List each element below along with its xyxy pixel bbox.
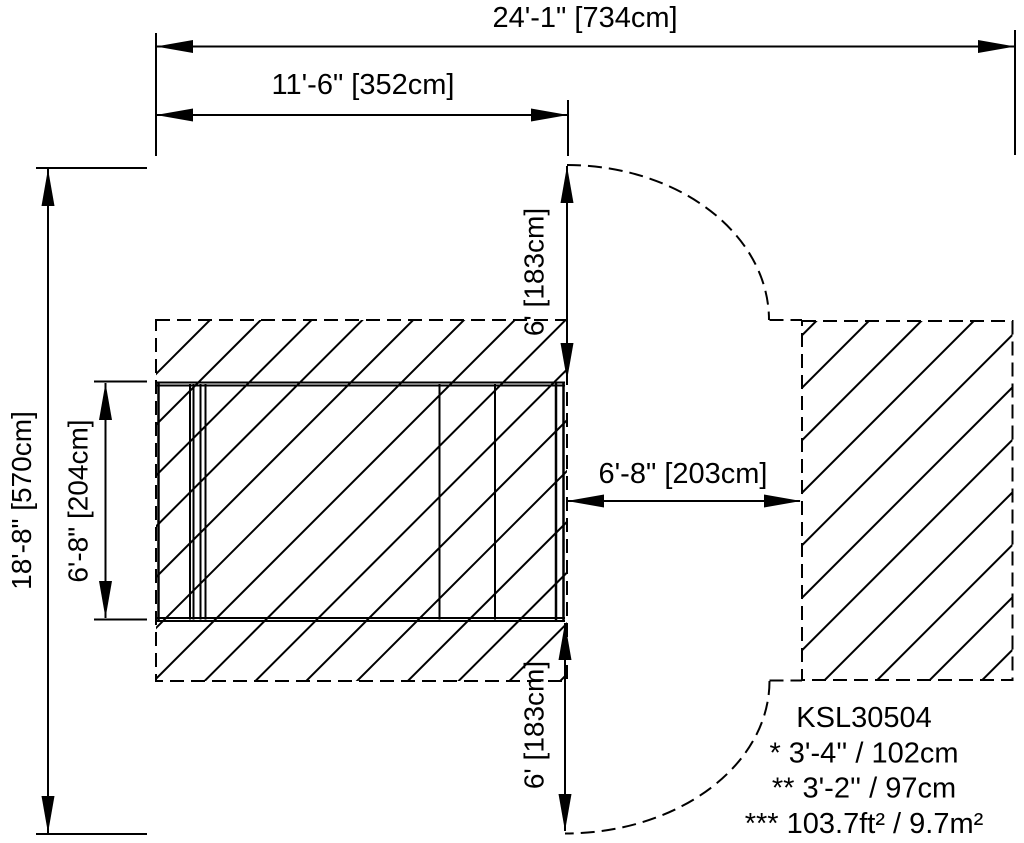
svg-text:KSL30504: KSL30504	[796, 702, 931, 734]
svg-text:11'-6" [352cm]: 11'-6" [352cm]	[272, 69, 455, 101]
svg-text:6'-8" [204cm]: 6'-8" [204cm]	[63, 419, 94, 582]
svg-text:18'-8" [570cm]: 18'-8" [570cm]	[6, 411, 37, 590]
svg-text:6' [183cm]: 6' [183cm]	[519, 661, 550, 789]
svg-text:** 3'-2'' / 97cm: ** 3'-2'' / 97cm	[772, 773, 956, 805]
svg-text:* 3'-4'' / 102cm: * 3'-4'' / 102cm	[769, 738, 958, 770]
svg-text:24'-1" [734cm]: 24'-1" [734cm]	[492, 2, 677, 34]
svg-text:*** 103.7ft² / 9.7m²: *** 103.7ft² / 9.7m²	[745, 808, 984, 840]
svg-text:6' [183cm]: 6' [183cm]	[519, 208, 550, 336]
svg-text:6'-8" [203cm]: 6'-8" [203cm]	[599, 458, 768, 490]
